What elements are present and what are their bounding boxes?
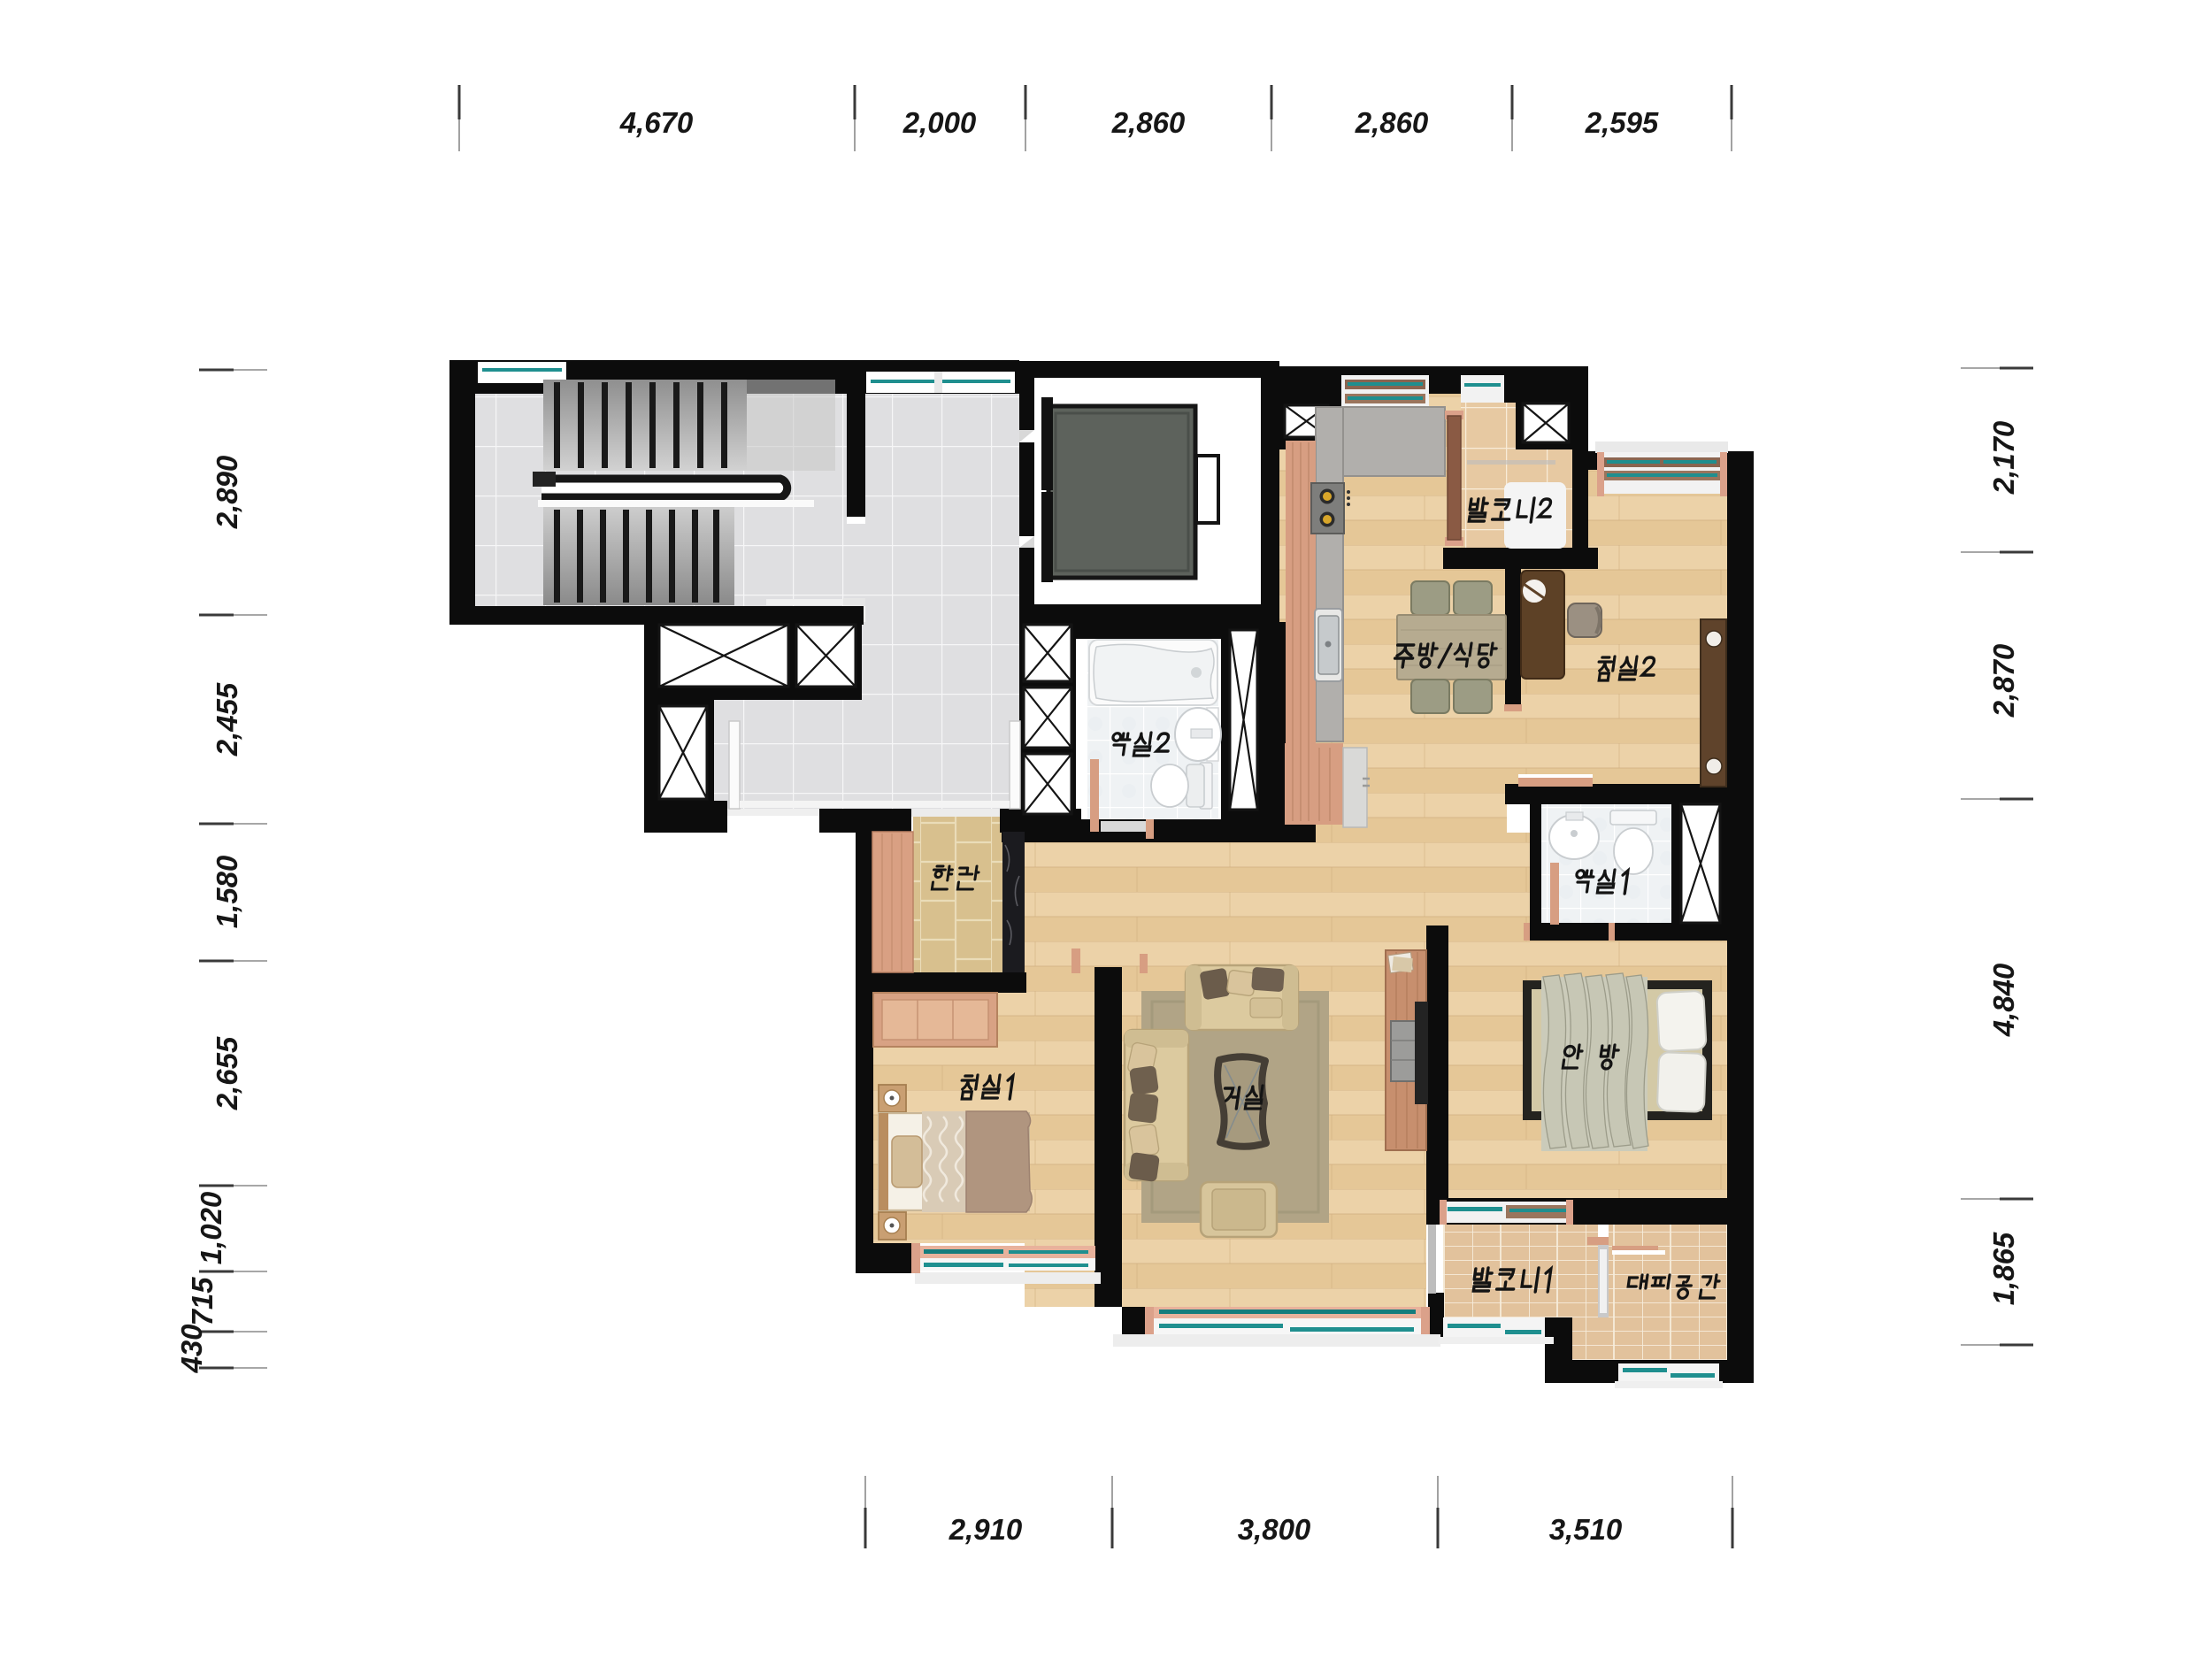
svg-text:4,670: 4,670 (619, 106, 694, 139)
svg-text:1,020: 1,020 (195, 1191, 227, 1264)
svg-text:2,910: 2,910 (949, 1513, 1023, 1546)
svg-text:1,580: 1,580 (211, 855, 243, 928)
svg-text:2,860: 2,860 (1111, 106, 1186, 139)
svg-text:2,655: 2,655 (211, 1036, 243, 1110)
svg-text:430: 430 (175, 1324, 208, 1374)
svg-text:1,865: 1,865 (1987, 1232, 2020, 1305)
svg-text:3,800: 3,800 (1238, 1513, 1311, 1546)
svg-text:2,455: 2,455 (211, 682, 243, 757)
svg-text:715: 715 (186, 1277, 219, 1326)
svg-text:2,860: 2,860 (1355, 106, 1429, 139)
svg-text:2,000: 2,000 (902, 106, 977, 139)
svg-text:2,870: 2,870 (1987, 643, 2020, 718)
svg-text:2,890: 2,890 (211, 455, 243, 529)
svg-text:2,595: 2,595 (1585, 106, 1659, 139)
svg-text:4,840: 4,840 (1987, 963, 2020, 1037)
svg-text:3,510: 3,510 (1549, 1513, 1623, 1546)
svg-text:2,170: 2,170 (1987, 420, 2020, 495)
